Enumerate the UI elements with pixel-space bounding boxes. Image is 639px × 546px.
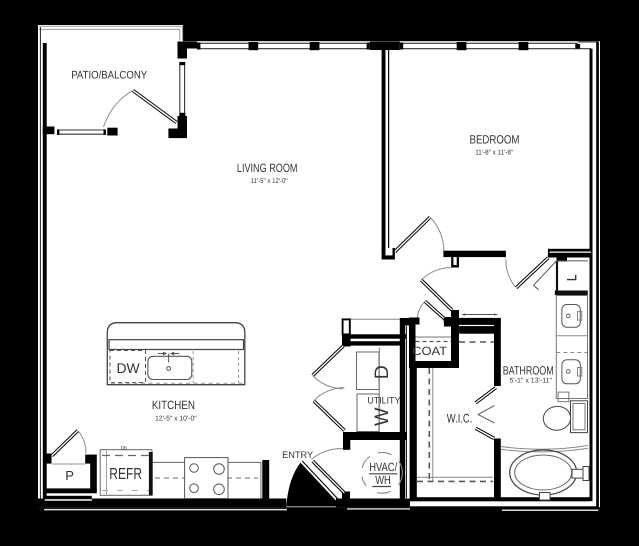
svg-text:5'-1" x 13'-11": 5'-1" x 13'-11" [510, 377, 553, 384]
svg-text:WH: WH [375, 473, 391, 487]
svg-text:KITCHEN: KITCHEN [152, 398, 195, 412]
svg-text:LIVING ROOM: LIVING ROOM [237, 161, 298, 175]
svg-text:11'-5" x 12'-0": 11'-5" x 12'-0" [251, 178, 288, 185]
svg-text:HVAC/: HVAC/ [369, 460, 398, 474]
svg-text:UTILITY: UTILITY [367, 396, 401, 407]
svg-text:REFR: REFR [109, 466, 142, 483]
svg-text:ENTRY: ENTRY [282, 450, 314, 461]
svg-text:D: D [371, 365, 393, 379]
svg-text:P: P [65, 468, 74, 483]
svg-text:COAT: COAT [412, 344, 448, 358]
svg-text:12'-5" x 10'-0": 12'-5" x 10'-0" [155, 415, 197, 422]
svg-text:W: W [371, 407, 393, 426]
svg-text:W.I.C.: W.I.C. [447, 411, 473, 425]
svg-text:BATHROOM: BATHROOM [503, 364, 554, 378]
svg-text:DW: DW [117, 360, 141, 376]
svg-text:BEDROOM: BEDROOM [470, 133, 520, 147]
svg-text:11'-8" x 11'-8": 11'-8" x 11'-8" [475, 150, 513, 157]
svg-text:PATIO/BALCONY: PATIO/BALCONY [71, 69, 148, 81]
svg-text:DB: DB [121, 445, 127, 450]
